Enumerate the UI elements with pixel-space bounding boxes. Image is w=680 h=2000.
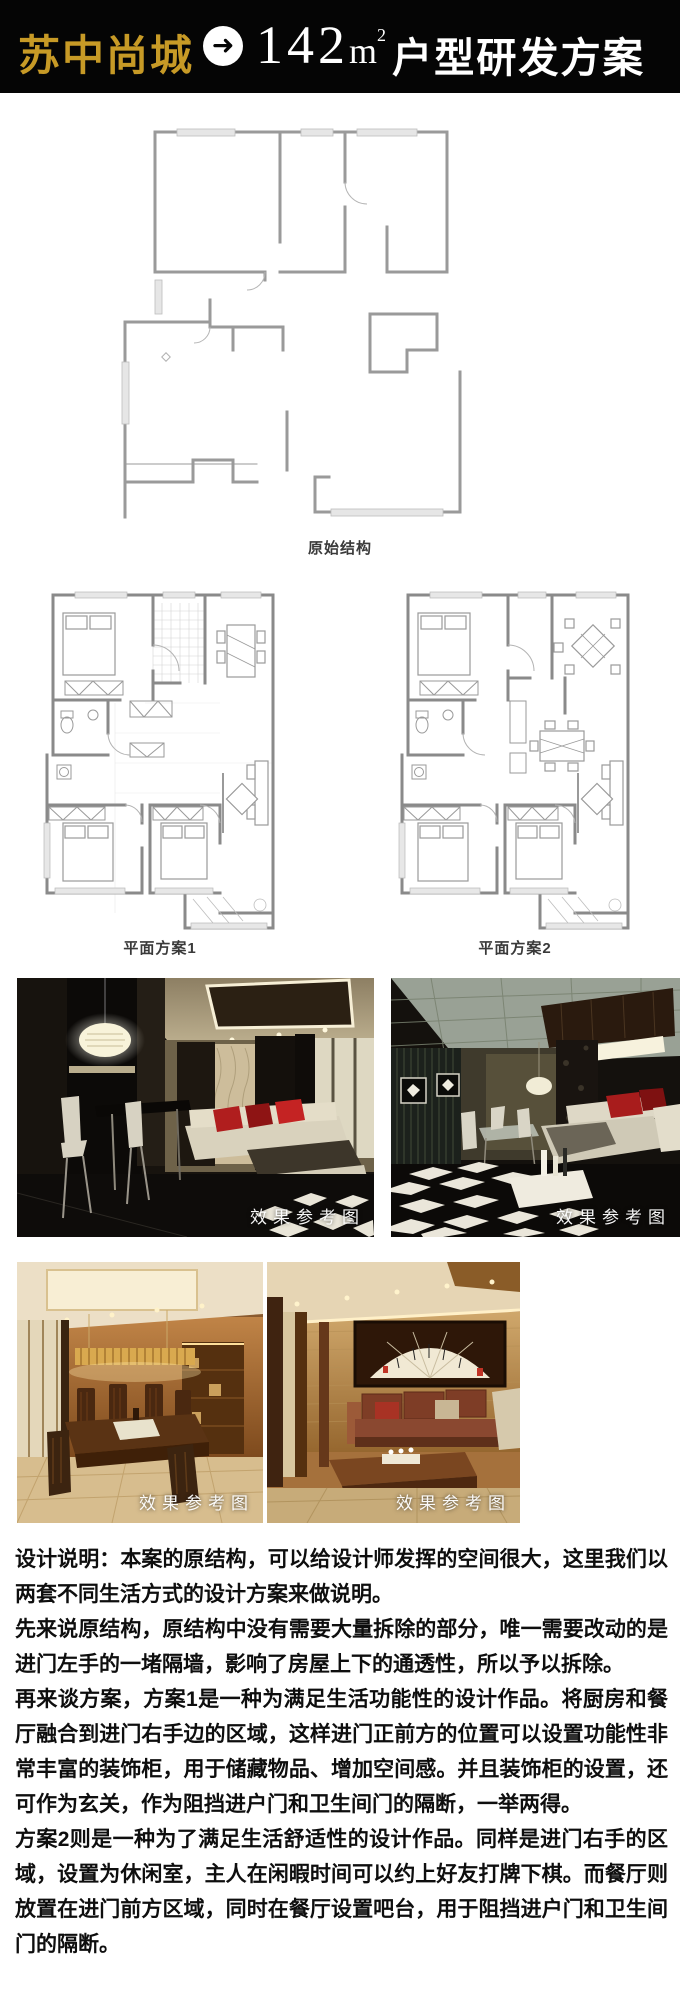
floor-plan-original — [115, 122, 485, 534]
page-canvas: 苏中尚城 ➜ 142m2 户型研发方案 — [0, 0, 680, 2000]
area-superscript: 2 — [377, 25, 386, 45]
area-value: 142 — [256, 15, 349, 75]
photo-2-left-render — [17, 1262, 263, 1523]
floor-plan-1-label: 平面方案1 — [35, 937, 285, 957]
project-name: 苏中尚城 — [18, 22, 194, 83]
photo-watermark: 效果参考图 — [139, 1489, 254, 1514]
design-paragraph-4: 方案2则是一种为了满足生活舒适性的设计作品。同样是进门右手的区域，设置为休闲室，… — [15, 1822, 668, 1962]
floor-plan-original-label: 原始结构 — [0, 537, 680, 557]
arrow-circle-icon: ➜ — [203, 26, 243, 66]
design-paragraph-3: 再来谈方案，方案1是一种为满足生活功能性的设计作品。将厨房和餐厅融合到进门右手边… — [15, 1682, 668, 1822]
design-paragraph-1: 设计说明：本案的原结构，可以给设计师发挥的空间很大，这里我们以两套不同生活方式的… — [15, 1542, 668, 1612]
header-bar: 苏中尚城 ➜ 142m2 户型研发方案 — [0, 0, 680, 93]
area-text: 142m2 — [256, 14, 386, 76]
floor-plan-original-drawing — [115, 122, 485, 534]
photo-1-right: 效果参考图 — [391, 978, 680, 1237]
floor-plan-2-label: 平面方案2 — [390, 937, 640, 957]
photo-watermark: 效果参考图 — [556, 1203, 671, 1228]
floor-plan-1-drawing — [35, 583, 285, 935]
design-notes: 设计说明：本案的原结构，可以给设计师发挥的空间很大，这里我们以两套不同生活方式的… — [15, 1542, 668, 1962]
photo-1-left: 效果参考图 — [17, 978, 374, 1237]
arrow-right-icon: ➜ — [212, 32, 235, 59]
photo-1-left-render — [17, 978, 374, 1237]
floor-plan-2 — [390, 583, 640, 935]
photo-2-right: 效果参考图 — [267, 1262, 520, 1523]
page-title: 户型研发方案 — [392, 24, 645, 84]
floor-plan-2-drawing — [390, 583, 640, 935]
photo-2-left: 效果参考图 — [17, 1262, 263, 1523]
area-unit: m — [349, 31, 377, 71]
photo-1-right-render — [391, 978, 680, 1237]
photo-watermark: 效果参考图 — [250, 1203, 365, 1228]
photo-2-right-render — [267, 1262, 520, 1523]
photo-watermark: 效果参考图 — [396, 1489, 511, 1514]
floor-plan-1 — [35, 583, 285, 935]
design-paragraph-2: 先来说原结构，原结构中没有需要大量拆除的部分，唯一需要改动的是进门左手的一堵隔墙… — [15, 1612, 668, 1682]
